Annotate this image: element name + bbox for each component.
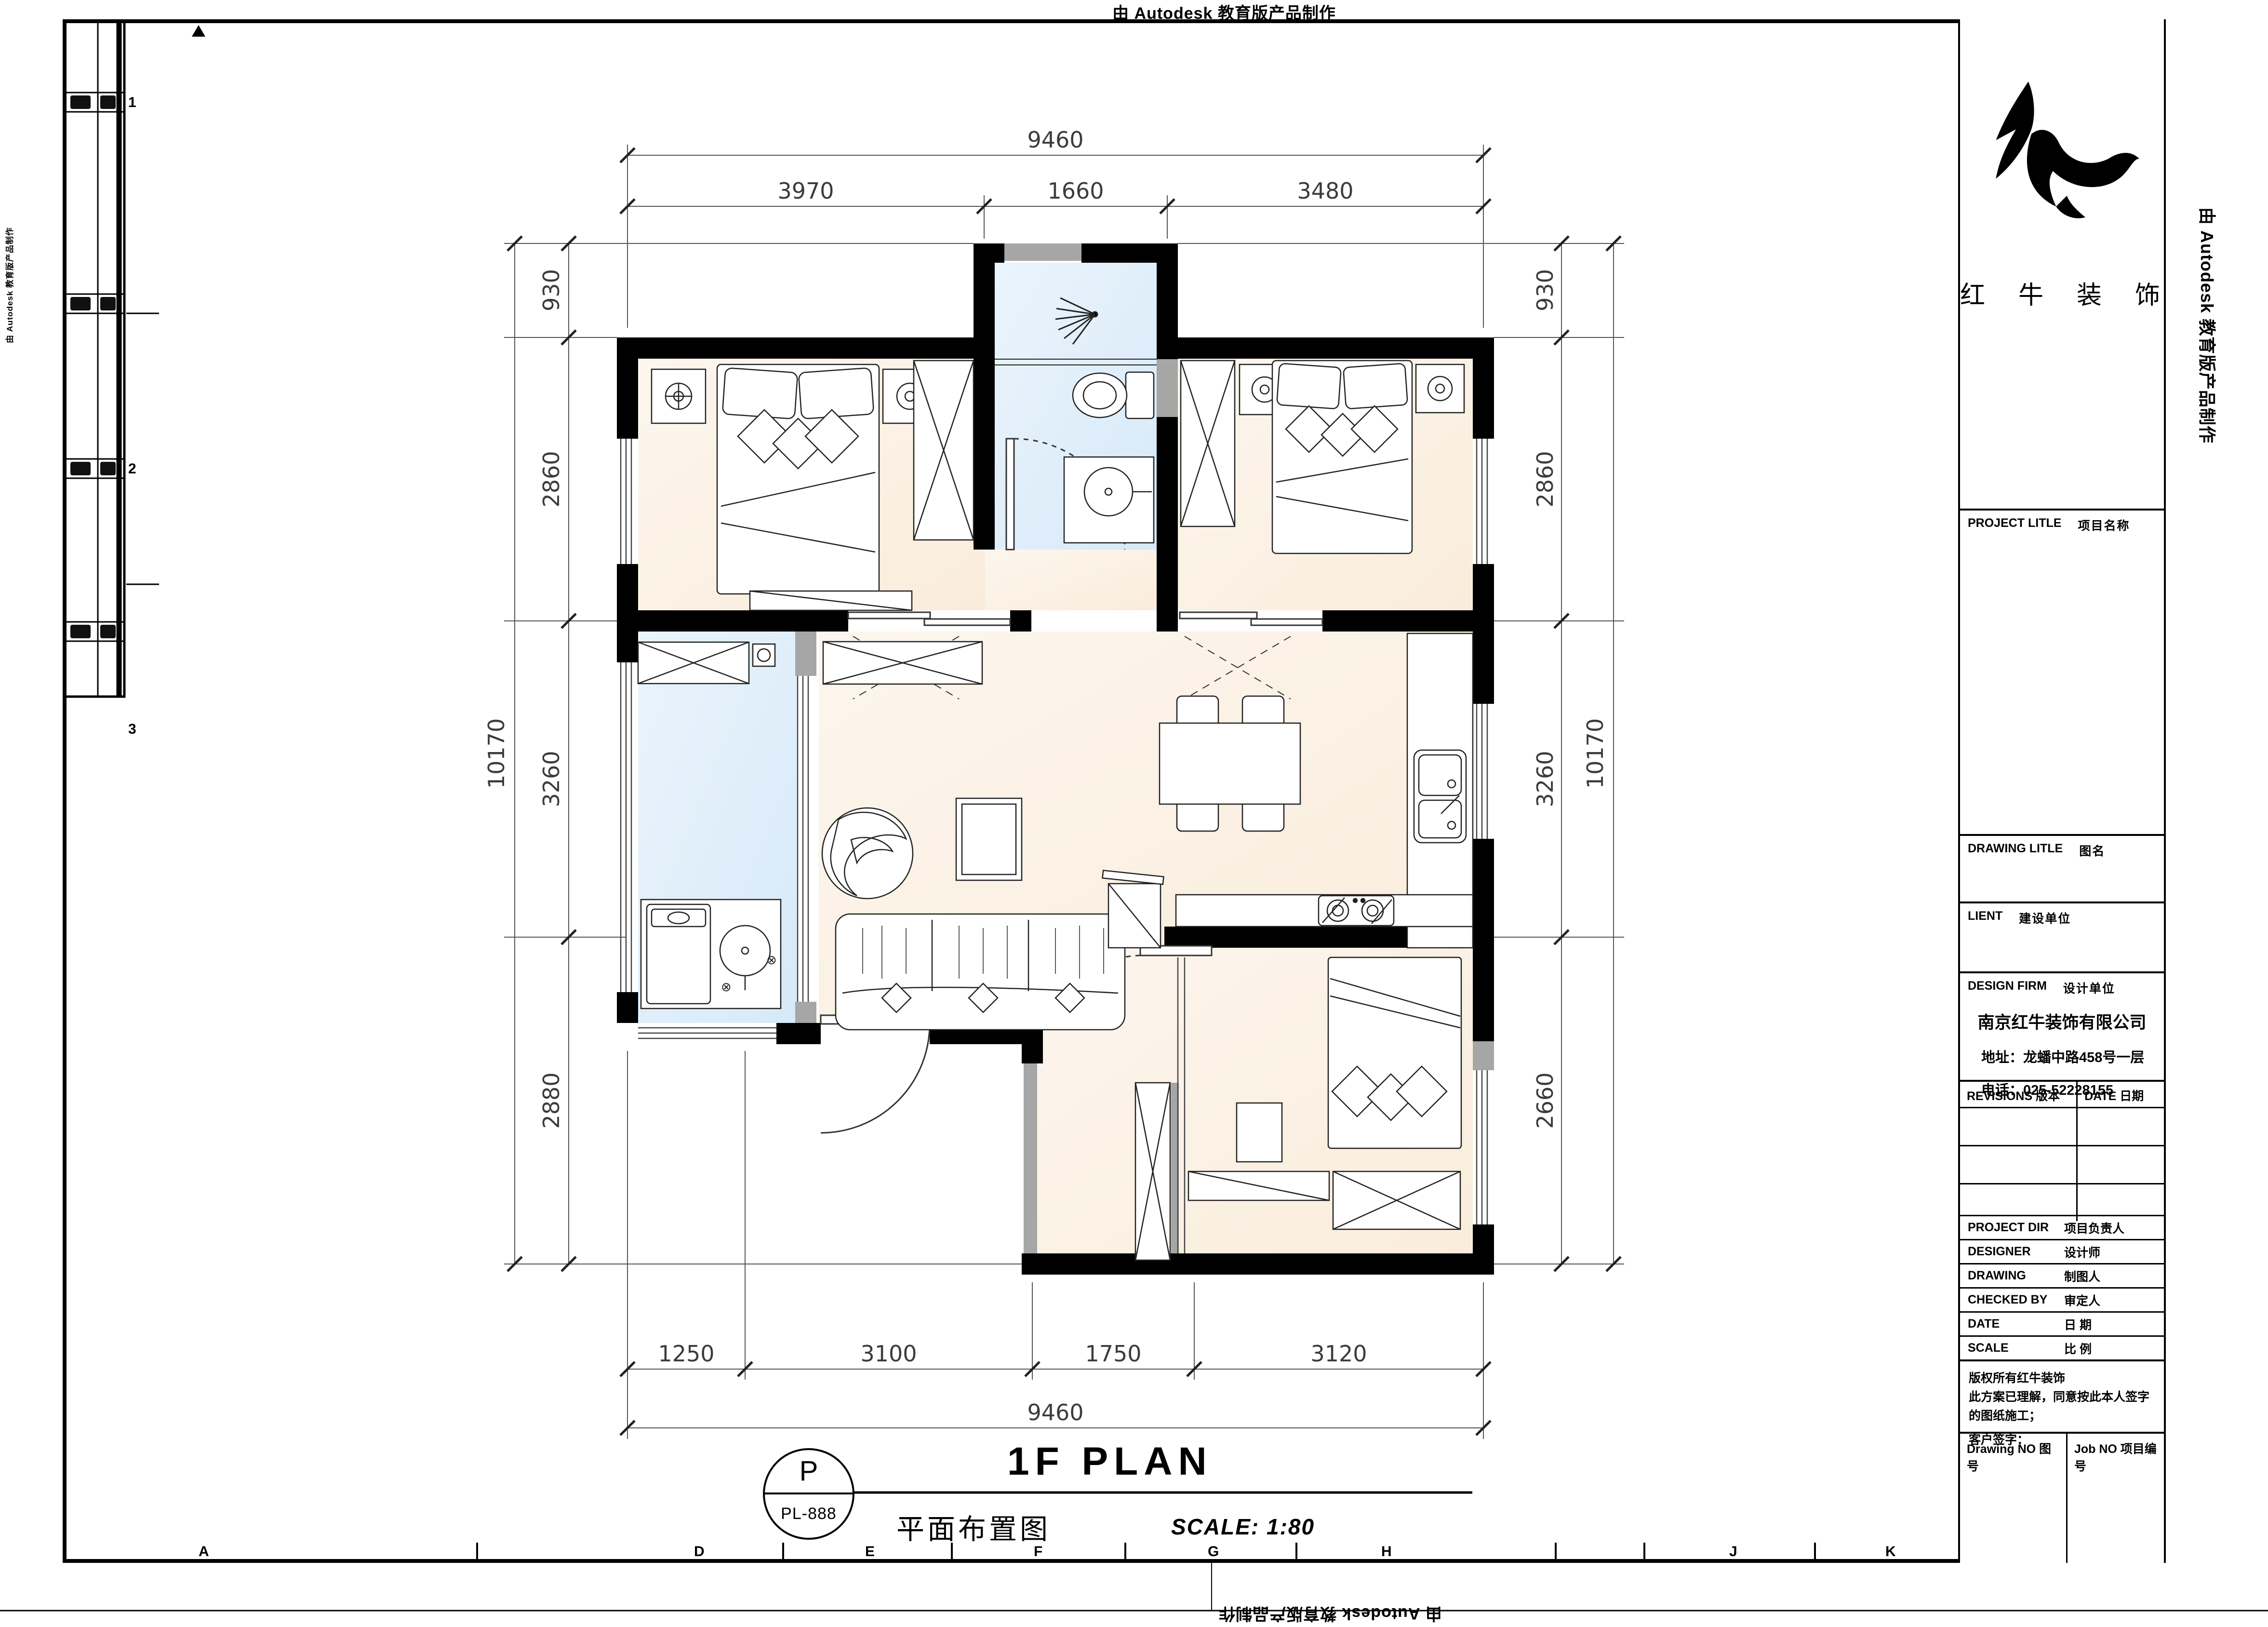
hall-floor — [985, 550, 1157, 610]
bedroom1-sliding-door — [848, 612, 930, 619]
copyright-note: 版权所有红牛装饰 — [1969, 1369, 2155, 1388]
bubble-number: PL-888 — [765, 1494, 853, 1533]
bedroom2-sliding-door — [1180, 612, 1257, 619]
autodesk-banner-right: 由 Autodesk 教育版产品制作 — [2196, 207, 2221, 444]
checked-by-label: CHECKED BY — [1968, 1293, 2050, 1307]
svg-text:930: 930 — [1532, 269, 1558, 311]
project-title-label: PROJECT LITLE — [1968, 516, 2061, 534]
svg-text:3100: 3100 — [860, 1341, 917, 1367]
design-firm-label: DESIGN FIRM — [1968, 979, 2047, 996]
svg-text:D: D — [694, 1544, 705, 1560]
svg-text:1660: 1660 — [1047, 178, 1104, 204]
svg-text:2660: 2660 — [1532, 1072, 1558, 1129]
svg-text:2860: 2860 — [1532, 451, 1558, 507]
autodesk-banner-top: 由 Autodesk 教育版产品制作 — [959, 0, 1489, 24]
washing-machine — [647, 904, 710, 1004]
svg-text:3970: 3970 — [777, 178, 834, 204]
bathroom-door-leaf — [1006, 439, 1014, 550]
svg-text:A: A — [199, 1544, 209, 1560]
plan-scale: SCALE: 1:80 — [1171, 1514, 1315, 1540]
bathroom-sink — [1064, 457, 1154, 543]
desk-chair — [1237, 1103, 1282, 1162]
drawing-by-label: DRAWING — [1968, 1269, 2050, 1283]
toilet — [1126, 372, 1154, 418]
revisions-section: REVISIONS 版本 DATE 日期 — [1960, 1080, 2164, 1215]
svg-text:3480: 3480 — [1297, 178, 1353, 204]
svg-text:3: 3 — [128, 721, 136, 737]
drawing-title-label: DRAWING LITLE — [1968, 842, 2063, 859]
firm-address: 地址：龙蟠中路458号一层 — [1981, 1046, 2164, 1066]
north-tick — [192, 25, 205, 37]
svg-text:1750: 1750 — [1085, 1341, 1141, 1367]
svg-text:3120: 3120 — [1310, 1341, 1367, 1367]
svg-text:G: G — [1208, 1544, 1219, 1560]
plan-subtitle: 平面布置图 — [896, 1506, 1051, 1547]
dining-table — [1160, 723, 1300, 804]
svg-text:9460: 9460 — [1027, 1399, 1083, 1425]
svg-text:1250: 1250 — [658, 1341, 714, 1367]
entry-door-swing — [821, 1024, 930, 1133]
bubble-letter: P — [765, 1450, 853, 1494]
client-label: LIENT — [1968, 909, 2002, 927]
designer-label-cn: 设计师 — [2064, 1243, 2100, 1261]
client-section: LIENT 建设单位 — [1960, 901, 2164, 971]
project-dir-label-cn: 项目负责人 — [2064, 1219, 2124, 1237]
project-dir-label: PROJECT DIR — [1968, 1221, 2050, 1235]
agreement-note: 此方案已理解，同意按此本人签字的图纸施工； — [1969, 1388, 2155, 1425]
drawing-no-section: Drawing NO 图号 Job NO 项目编号 — [1960, 1432, 2164, 1563]
svg-text:10170: 10170 — [1582, 718, 1608, 789]
title-block: 红 牛 装 饰 PROJECT LITLE 项目名称 DRAWING LITLE… — [1958, 19, 2164, 1563]
svg-text:K: K — [1885, 1544, 1896, 1560]
project-title-section: PROJECT LITLE 项目名称 — [1960, 509, 2164, 834]
job-no-label: Job NO 项目编号 — [2066, 1434, 2164, 1563]
autodesk-banner-bottom: 由 Autodesk 教育版产品制作 — [1147, 1603, 1513, 1627]
svg-text:E: E — [865, 1544, 875, 1560]
svg-text:⊗: ⊗ — [766, 953, 777, 967]
coffee-table — [956, 798, 1022, 880]
scale-row-label-cn: 比 例 — [2064, 1340, 2092, 1357]
floor-plan-drawing: A D E F G H J K 1 2 3 — [0, 0, 2268, 1625]
revisions-label: REVISIONS 版本 — [1960, 1082, 2076, 1107]
design-firm-label-cn: 设计单位 — [2063, 979, 2115, 996]
client-label-cn: 建设单位 — [2019, 909, 2071, 927]
firm-name: 南京红牛装饰有限公司 — [1960, 1009, 2164, 1034]
svg-text:930: 930 — [538, 269, 564, 311]
logo-text: 红 牛 装 饰 — [1960, 275, 2164, 311]
svg-text:2860: 2860 — [538, 451, 564, 507]
svg-text:10170: 10170 — [483, 718, 509, 789]
fold-strip-marks — [70, 95, 116, 638]
plan-title: 1F PLAN — [1007, 1439, 1213, 1484]
designer-label: DESIGNER — [1968, 1245, 2050, 1259]
staff-section: PROJECT DIR 项目负责人 DESIGNER 设计师 DRAWING 制… — [1960, 1215, 2164, 1359]
cad-sheet: { "autodesk_banner": "由 Autodesk 教育版产品制作… — [0, 0, 2268, 1625]
svg-text:1: 1 — [128, 94, 136, 110]
sofa — [836, 914, 1125, 1030]
date-row-label: DATE — [1968, 1317, 2050, 1331]
drawing-by-label-cn: 制图人 — [2064, 1267, 2100, 1285]
svg-text:2: 2 — [128, 461, 136, 477]
svg-text:3260: 3260 — [538, 751, 564, 807]
svg-text:9460: 9460 — [1027, 127, 1083, 153]
date-label: DATE 日期 — [2076, 1082, 2164, 1107]
project-title-label-cn: 项目名称 — [2078, 516, 2130, 534]
revision-row-empty — [1960, 1146, 2076, 1183]
hongniu-logo-icon — [1985, 77, 2139, 222]
fold-strip — [65, 21, 159, 697]
drawing-title-section: DRAWING LITLE 图名 — [1960, 834, 2164, 901]
date-row-label-cn: 日 期 — [2064, 1316, 2092, 1333]
revision-row-empty — [1960, 1108, 2076, 1145]
svg-text:⊗: ⊗ — [721, 980, 732, 994]
logo-section: 红 牛 装 饰 — [1960, 19, 2164, 509]
svg-text:2880: 2880 — [538, 1072, 564, 1129]
svg-text:3260: 3260 — [1532, 751, 1558, 807]
bed — [1328, 957, 1461, 1148]
svg-text:J: J — [1729, 1544, 1737, 1560]
notes-section: 版权所有红牛装饰 此方案已理解，同意按此本人签字的图纸施工； 客户签字： — [1960, 1359, 2164, 1432]
design-firm-section: DESIGN FIRM 设计单位 南京红牛装饰有限公司 地址：龙蟠中路458号一… — [1960, 971, 2164, 1080]
scale-row-label: SCALE — [1968, 1341, 2050, 1355]
drawing-no-label: Drawing NO 图号 — [1960, 1434, 2066, 1563]
drawing-title-label-cn: 图名 — [2079, 842, 2105, 859]
checked-by-label-cn: 审定人 — [2064, 1291, 2100, 1309]
svg-text:H: H — [1381, 1544, 1392, 1560]
autodesk-banner-left: 由 Autodesk 教育版产品制作 — [3, 227, 15, 343]
drawing-number-bubble: P PL-888 — [763, 1448, 854, 1540]
